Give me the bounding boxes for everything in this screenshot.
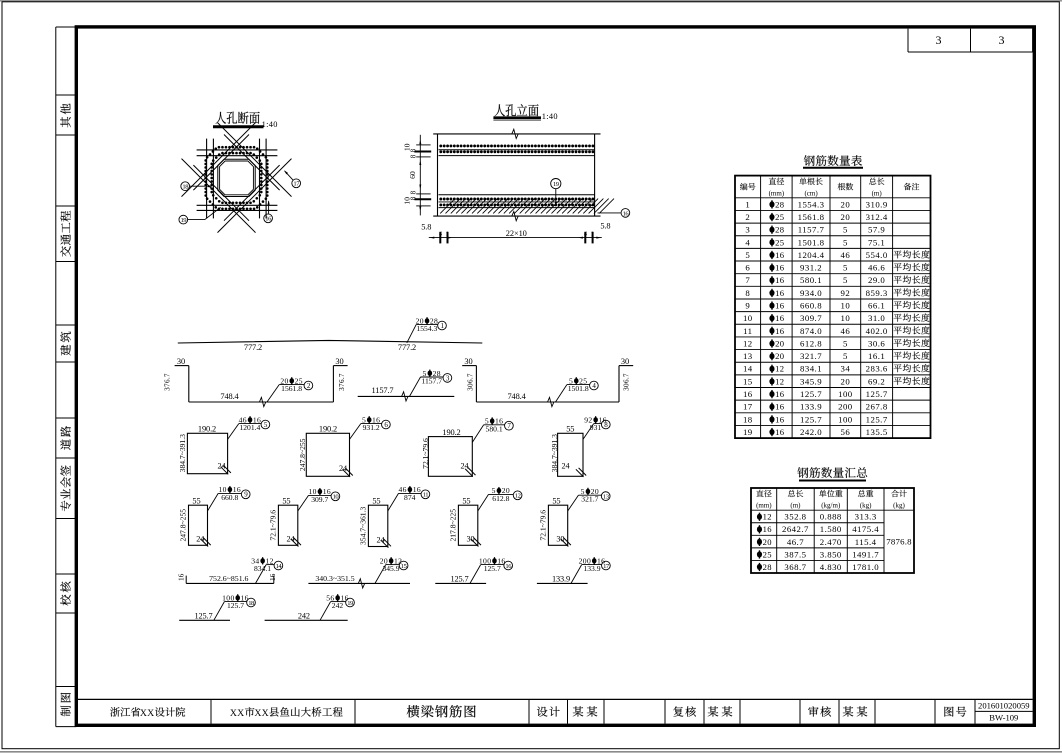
svg-text:16: 16 (775, 275, 785, 285)
svg-text:834.1: 834.1 (800, 364, 822, 374)
svg-text:12: 12 (763, 512, 772, 522)
svg-text:125.7: 125.7 (484, 564, 501, 573)
svg-text:16: 16 (775, 250, 785, 260)
svg-text:2642.7: 2642.7 (782, 524, 809, 534)
svg-text:92: 92 (841, 288, 851, 298)
svg-text:28: 28 (775, 225, 784, 235)
svg-text:133.9: 133.9 (552, 575, 570, 584)
svg-text:10: 10 (841, 313, 851, 323)
svg-text:242: 242 (332, 601, 344, 610)
svg-text:9: 9 (745, 301, 750, 311)
svg-text:16.1: 16.1 (868, 351, 885, 361)
svg-text:16: 16 (775, 402, 785, 412)
svg-text:5: 5 (843, 237, 848, 247)
svg-text:24: 24 (377, 536, 385, 545)
svg-text:0.888: 0.888 (820, 512, 842, 522)
svg-text:12: 12 (775, 364, 784, 374)
svg-text:190.2: 190.2 (319, 425, 337, 434)
svg-text:5.8: 5.8 (421, 222, 431, 231)
svg-text:2.470: 2.470 (820, 537, 842, 547)
svg-text:8: 8 (410, 190, 418, 194)
svg-text:4: 4 (439, 231, 442, 238)
svg-text:16: 16 (763, 524, 773, 534)
svg-text:BW-109: BW-109 (989, 712, 1018, 722)
svg-text:60: 60 (408, 171, 417, 179)
svg-text:1204.4: 1204.4 (798, 250, 825, 260)
svg-text:580.1: 580.1 (800, 275, 822, 285)
svg-text:190.2: 190.2 (442, 428, 460, 437)
svg-text:834.1: 834.1 (254, 564, 271, 573)
svg-text:57.9: 57.9 (868, 225, 885, 235)
svg-text:46: 46 (841, 250, 851, 260)
svg-text:777.2: 777.2 (244, 343, 262, 352)
svg-text:12: 12 (743, 338, 753, 348)
svg-text:8: 8 (410, 148, 418, 152)
svg-text:135.5: 135.5 (866, 427, 888, 437)
svg-text:55: 55 (552, 496, 560, 505)
svg-text:354.7~361.3: 354.7~361.3 (358, 507, 367, 545)
svg-text:16: 16 (775, 313, 785, 323)
svg-text:1554.3: 1554.3 (416, 324, 437, 333)
svg-text:352.8: 352.8 (784, 512, 806, 522)
svg-text:384.7~391.3: 384.7~391.3 (178, 434, 187, 472)
svg-text:30: 30 (335, 357, 343, 366)
svg-text:1157.7: 1157.7 (421, 377, 442, 386)
svg-text:283.6: 283.6 (866, 364, 888, 374)
svg-text:934.0: 934.0 (800, 288, 822, 298)
svg-text:4.830: 4.830 (820, 562, 842, 572)
svg-text:5: 5 (745, 250, 750, 260)
svg-text:56: 56 (841, 427, 851, 437)
svg-text:125.7: 125.7 (800, 389, 822, 399)
svg-text:(cm): (cm) (804, 190, 818, 198)
svg-text:3: 3 (999, 33, 1005, 47)
svg-text:55: 55 (462, 496, 470, 505)
svg-text:402.0: 402.0 (866, 326, 888, 336)
svg-text:612.8: 612.8 (800, 338, 822, 348)
svg-text:24: 24 (461, 462, 469, 471)
svg-text:20: 20 (763, 537, 772, 547)
svg-text:376.7: 376.7 (338, 373, 346, 391)
svg-text:1201.4: 1201.4 (239, 423, 260, 432)
svg-text:1554.3: 1554.3 (798, 199, 825, 209)
svg-text:200: 200 (838, 402, 853, 412)
svg-text:24: 24 (287, 535, 295, 544)
svg-text:(kg/m): (kg/m) (821, 502, 841, 510)
svg-text:55: 55 (192, 496, 200, 505)
svg-text:66.1: 66.1 (868, 301, 885, 311)
svg-text:72.1~79.6: 72.1~79.6 (268, 510, 277, 541)
svg-text:20: 20 (841, 376, 851, 386)
svg-text:387.5: 387.5 (784, 549, 806, 559)
svg-text:376.7: 376.7 (163, 373, 171, 391)
svg-text:309.7: 309.7 (800, 313, 822, 323)
svg-text:5: 5 (843, 225, 848, 235)
svg-text:46: 46 (841, 326, 851, 336)
svg-text:8: 8 (410, 154, 418, 158)
svg-text:(kg): (kg) (860, 502, 872, 510)
svg-text:10: 10 (402, 197, 411, 205)
svg-text:16: 16 (775, 414, 785, 424)
svg-text:321.7: 321.7 (581, 495, 598, 504)
svg-text:310.9: 310.9 (866, 199, 888, 209)
svg-text:217.8~225: 217.8~225 (448, 509, 457, 542)
svg-text:34: 34 (841, 364, 851, 374)
svg-text:7: 7 (745, 275, 750, 285)
svg-text:16: 16 (775, 326, 785, 336)
svg-text:46.7: 46.7 (787, 537, 804, 547)
svg-text:1: 1 (591, 231, 594, 238)
svg-text:345.9: 345.9 (382, 564, 399, 573)
svg-text:16: 16 (775, 288, 785, 298)
svg-text:1491.7: 1491.7 (852, 549, 879, 559)
svg-text:4: 4 (745, 237, 750, 247)
svg-text:5: 5 (843, 338, 848, 348)
svg-text:3: 3 (936, 33, 942, 47)
svg-text:55: 55 (372, 496, 380, 505)
svg-text:20: 20 (841, 199, 851, 209)
svg-text:XX: XX (230, 708, 245, 719)
svg-text:20: 20 (841, 212, 851, 222)
svg-text:20: 20 (775, 338, 784, 348)
svg-text:931.2: 931.2 (800, 263, 822, 273)
svg-text:125.7: 125.7 (194, 611, 212, 620)
svg-text:46.6: 46.6 (868, 263, 885, 273)
svg-text:24: 24 (218, 461, 226, 470)
svg-text:133.9: 133.9 (800, 402, 822, 412)
svg-text:321.7: 321.7 (800, 351, 822, 361)
svg-text:16: 16 (775, 427, 785, 437)
svg-text:5: 5 (843, 351, 848, 361)
svg-text:28: 28 (775, 199, 784, 209)
svg-text:16: 16 (177, 573, 186, 581)
svg-text:1: 1 (745, 199, 750, 209)
svg-text:1561.8: 1561.8 (798, 212, 825, 222)
svg-text:4175.4: 4175.4 (852, 524, 879, 534)
svg-text:10: 10 (743, 313, 753, 323)
svg-text:125.7: 125.7 (800, 414, 822, 424)
svg-text:306.7: 306.7 (622, 373, 630, 391)
svg-text:31.0: 31.0 (868, 313, 885, 323)
svg-text:11: 11 (743, 326, 752, 336)
svg-text:(mm): (mm) (756, 502, 772, 510)
svg-text:30: 30 (556, 535, 564, 544)
svg-text:(mm): (mm) (769, 190, 785, 198)
svg-text:201601020059: 201601020059 (978, 701, 1030, 711)
svg-text:72.1~79.6: 72.1~79.6 (421, 438, 430, 469)
svg-text:16: 16 (775, 263, 785, 273)
svg-text:660.8: 660.8 (800, 301, 822, 311)
svg-text:(m): (m) (872, 190, 883, 198)
svg-text:5: 5 (843, 275, 848, 285)
svg-text:133.9: 133.9 (583, 564, 600, 573)
svg-text:29.0: 29.0 (868, 275, 885, 285)
svg-text:69.2: 69.2 (868, 376, 885, 386)
svg-text:368.7: 368.7 (784, 562, 806, 572)
svg-text:1501.8: 1501.8 (568, 384, 589, 393)
svg-text:25: 25 (775, 212, 784, 222)
svg-text:22×10: 22×10 (506, 229, 527, 238)
svg-text:2: 2 (745, 212, 750, 222)
svg-text:24: 24 (562, 461, 570, 470)
svg-text:25: 25 (763, 549, 772, 559)
svg-text:242.0: 242.0 (800, 427, 822, 437)
svg-text:859.3: 859.3 (866, 288, 888, 298)
svg-text:748.4: 748.4 (507, 392, 526, 401)
svg-text:11: 11 (423, 492, 429, 499)
svg-text:XX: XX (140, 708, 155, 719)
svg-text:1781.0: 1781.0 (852, 562, 879, 572)
svg-text:1561.8: 1561.8 (281, 384, 302, 393)
svg-text:1157.7: 1157.7 (798, 225, 825, 235)
svg-text:125.7: 125.7 (450, 575, 468, 584)
svg-text:190.2: 190.2 (198, 425, 216, 434)
svg-text:874.0: 874.0 (800, 326, 822, 336)
svg-text:55: 55 (566, 425, 574, 434)
svg-text:10: 10 (841, 301, 851, 311)
svg-text:13: 13 (743, 351, 753, 361)
svg-text:1:40: 1:40 (262, 120, 278, 129)
svg-text:4: 4 (584, 231, 587, 238)
svg-text:931: 931 (590, 423, 602, 432)
svg-text:5.8: 5.8 (600, 222, 610, 231)
svg-text:75.1: 75.1 (868, 237, 885, 247)
svg-text:660.8: 660.8 (221, 493, 238, 502)
svg-text:30: 30 (467, 535, 475, 544)
svg-text:612.8: 612.8 (492, 494, 509, 503)
svg-text:20: 20 (775, 351, 784, 361)
svg-text:752.6~851.6: 752.6~851.6 (209, 574, 248, 583)
svg-text:12: 12 (775, 376, 784, 386)
svg-text:100: 100 (838, 389, 853, 399)
svg-text:28: 28 (763, 562, 772, 572)
svg-text:19: 19 (743, 427, 753, 437)
svg-text:1: 1 (446, 231, 449, 238)
svg-text:3: 3 (745, 225, 750, 235)
svg-text:1:40: 1:40 (542, 112, 558, 121)
svg-text:345.9: 345.9 (800, 376, 822, 386)
svg-text:115.4: 115.4 (855, 537, 877, 547)
svg-text:306.7: 306.7 (467, 373, 475, 391)
svg-text:14: 14 (743, 364, 753, 374)
svg-text:16: 16 (775, 301, 785, 311)
svg-text:18: 18 (743, 414, 753, 424)
svg-text:55: 55 (282, 496, 290, 505)
svg-text:8: 8 (745, 288, 750, 298)
svg-text:16: 16 (268, 573, 277, 581)
svg-text:1501.8: 1501.8 (798, 237, 825, 247)
svg-text:72.1~79.6: 72.1~79.6 (538, 510, 547, 541)
svg-text:17: 17 (743, 402, 753, 412)
svg-text:247.8~255: 247.8~255 (179, 509, 188, 542)
svg-text:6: 6 (745, 263, 750, 273)
svg-text:242: 242 (298, 611, 310, 620)
svg-text:100: 100 (838, 414, 853, 424)
svg-text:24: 24 (339, 464, 347, 473)
svg-text:15: 15 (743, 376, 753, 386)
svg-text:25: 25 (775, 237, 784, 247)
svg-text:125.7: 125.7 (227, 601, 244, 610)
svg-text:3.850: 3.850 (820, 549, 842, 559)
svg-text:874: 874 (404, 493, 416, 502)
svg-text:777.2: 777.2 (398, 343, 416, 352)
svg-text:30: 30 (464, 357, 472, 366)
svg-text:267.8: 267.8 (866, 402, 888, 412)
svg-text:30: 30 (177, 357, 185, 366)
svg-text:125.7: 125.7 (866, 389, 888, 399)
svg-text:554.0: 554.0 (866, 250, 888, 260)
svg-text:16: 16 (743, 389, 753, 399)
svg-text:XX: XX (254, 708, 269, 719)
svg-text:931.2: 931.2 (363, 423, 380, 432)
svg-text:312.4: 312.4 (866, 212, 888, 222)
svg-text:1.580: 1.580 (820, 524, 842, 534)
svg-text:340.3~351.5: 340.3~351.5 (315, 574, 354, 583)
svg-text:30.6: 30.6 (868, 338, 885, 348)
svg-text:5: 5 (843, 263, 848, 273)
svg-text:24: 24 (196, 535, 204, 544)
svg-text:580.1: 580.1 (486, 424, 503, 433)
svg-text:(kg): (kg) (893, 502, 905, 510)
svg-text:313.3: 313.3 (855, 512, 877, 522)
svg-text:247.8~255: 247.8~255 (298, 438, 307, 471)
svg-text:16: 16 (775, 389, 785, 399)
svg-text:1157.7: 1157.7 (372, 386, 394, 395)
svg-text:7876.8: 7876.8 (886, 537, 912, 547)
svg-text:309.7: 309.7 (311, 495, 328, 504)
svg-text:30: 30 (621, 357, 629, 366)
svg-text:384.7~391.3: 384.7~391.3 (550, 434, 559, 472)
svg-text:(m): (m) (790, 502, 801, 510)
svg-text:125.7: 125.7 (866, 414, 888, 424)
svg-text:748.4: 748.4 (220, 392, 239, 401)
svg-text:12: 12 (515, 493, 521, 500)
